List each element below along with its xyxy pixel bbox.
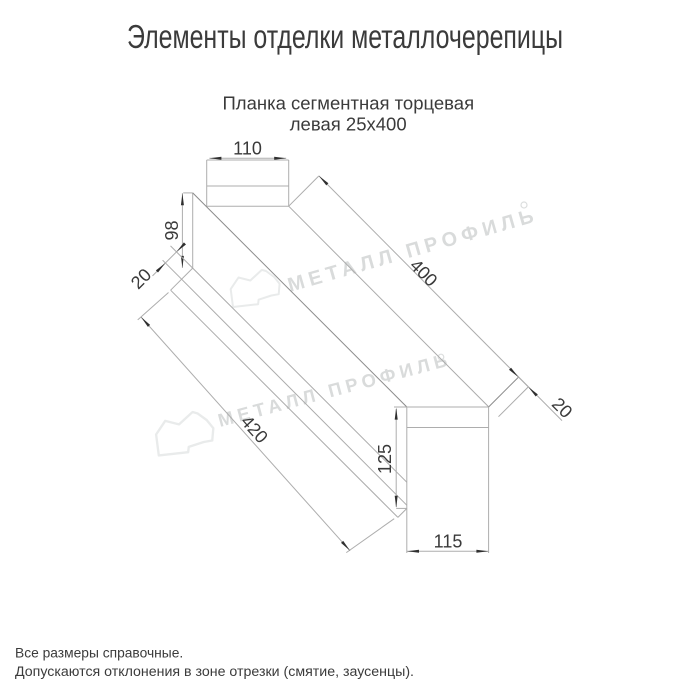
svg-text:Все размеры справочные.: Все размеры справочные. [15, 646, 183, 661]
svg-text:115: 115 [434, 532, 463, 552]
svg-text:Допускаются отклонения в зоне: Допускаются отклонения в зоне отрезки (с… [15, 664, 414, 680]
svg-text:110: 110 [233, 138, 262, 158]
svg-text:98: 98 [162, 220, 182, 240]
svg-text:Элементы отделки металлочерепи: Элементы отделки металлочерепицы [127, 18, 563, 55]
svg-text:125: 125 [375, 444, 395, 474]
svg-text:левая 25х400: левая 25х400 [290, 114, 407, 135]
svg-text:Планка сегментная торцевая: Планка сегментная торцевая [222, 92, 474, 113]
